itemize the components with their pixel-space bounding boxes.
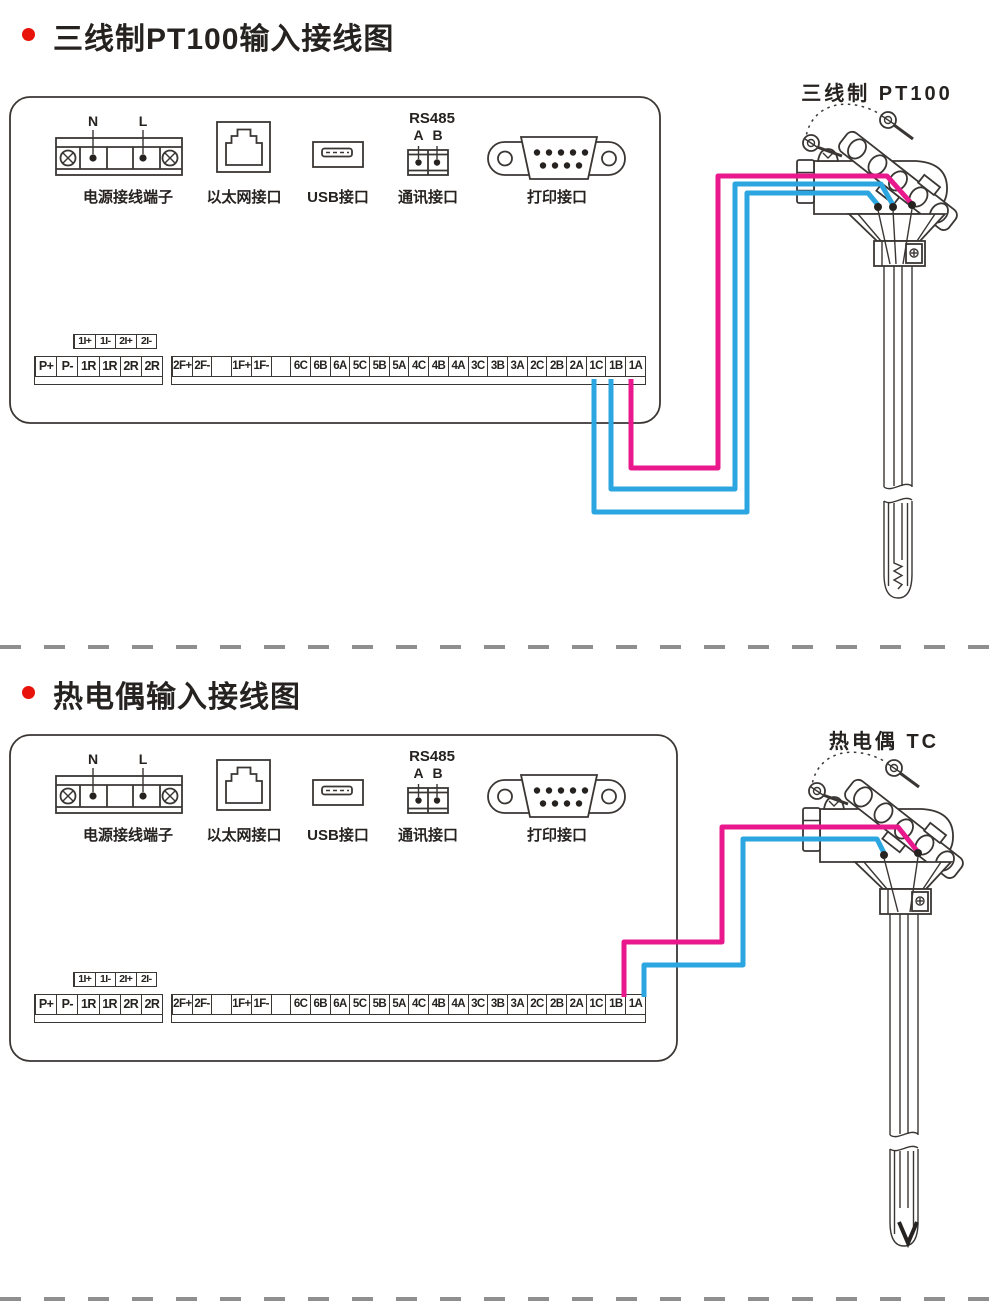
print-port-label: 打印接口	[487, 186, 627, 207]
rs485-label: RS485	[392, 748, 472, 765]
terminal-cell: P+	[35, 995, 56, 1014]
terminal-cell: 3C	[468, 357, 488, 376]
terminal-cell: 2A	[566, 357, 586, 376]
terminal-cell: 1R	[77, 357, 98, 376]
current-terminal-strip-2: 1I+1I-2I+2I-	[73, 972, 157, 987]
terminal-cell: 2I-	[136, 335, 157, 348]
terminal-cell: 2R	[141, 357, 162, 376]
terminal-cell: 5A	[389, 357, 409, 376]
terminal-cell: 3B	[487, 995, 507, 1014]
terminal-cell: 3C	[468, 995, 488, 1014]
terminal-cell: 2I+	[115, 973, 136, 986]
terminal-cell: 1B	[605, 995, 625, 1014]
terminal-cell: 2A	[566, 995, 586, 1014]
terminal-cell: 5A	[389, 995, 409, 1014]
terminal-cell: 2R	[141, 995, 162, 1014]
terminal-cell: 6C	[290, 995, 310, 1014]
terminal-cell: 2I+	[115, 335, 136, 348]
terminal-cell: 1I+	[74, 973, 95, 986]
terminal-cell: 1R	[77, 995, 98, 1014]
terminal-cell: 5B	[369, 357, 389, 376]
terminal-cell	[211, 357, 231, 376]
terminal-cell: 1F-	[251, 995, 271, 1014]
terminal-cell: 6A	[330, 357, 350, 376]
strip-rail	[35, 376, 162, 384]
terminal-cell: 5B	[369, 995, 389, 1014]
sensor-probe-pt100	[797, 104, 965, 598]
terminal-cell: P-	[56, 357, 77, 376]
rs485-b-label: B	[427, 765, 448, 781]
current-terminal-strip-1: 1I+1I-2I+2I-	[73, 334, 157, 349]
terminal-cell: P-	[56, 995, 77, 1014]
terminal-cell: 2B	[546, 357, 566, 376]
pt100-element	[894, 560, 902, 589]
strip-rail	[172, 376, 645, 384]
terminal-cell: 3B	[487, 357, 507, 376]
terminal-cell: 3A	[507, 995, 527, 1014]
terminal-cell: 6C	[290, 357, 310, 376]
terminal-cell: 4C	[408, 357, 428, 376]
terminal-cell: 2F-	[192, 357, 212, 376]
terminal-cell: 2B	[546, 995, 566, 1014]
terminal-cell: 6B	[310, 995, 330, 1014]
terminal-cell: 2R	[120, 995, 141, 1014]
comm-port-label: 通讯接口	[358, 186, 498, 207]
terminal-cell: 5C	[349, 357, 369, 376]
strip-rail	[35, 1014, 162, 1022]
terminal-cell: 1R	[99, 357, 120, 376]
section1-bullet-icon	[22, 28, 35, 41]
rs485-a-label: A	[408, 127, 429, 143]
terminal-cell: 1B	[605, 357, 625, 376]
input-channel-strip-2: 2F+2F-1F+1F-6C6B6A5C5B5A4C4B4A3C3B3A2C2B…	[171, 994, 646, 1023]
terminal-cell: 5C	[349, 995, 369, 1014]
terminal-cell: 3A	[507, 357, 527, 376]
power-l-label: L	[133, 113, 153, 129]
rs485-a-label: A	[408, 765, 429, 781]
comm-port-label: 通讯接口	[358, 824, 498, 845]
terminal-cell: 1R	[99, 995, 120, 1014]
power-l-label: L	[133, 751, 153, 767]
section2-bullet-icon	[22, 686, 35, 699]
terminal-cell: 4B	[428, 995, 448, 1014]
strip-rail	[172, 1014, 645, 1022]
terminal-cell: 2C	[527, 357, 547, 376]
terminal-cell: 1F+	[231, 995, 251, 1014]
sensor-probe-tc	[803, 752, 971, 1246]
terminal-cell: P+	[35, 357, 56, 376]
terminal-cell: 6A	[330, 995, 350, 1014]
page-bottom-divider	[0, 1297, 990, 1301]
terminal-cell: 1C	[586, 995, 606, 1014]
terminal-cell: 2R	[120, 357, 141, 376]
wiring-diagram-page: 三线制PT100输入接线图 N L RS485 A B 电源接线端子 以太网接口…	[0, 0, 990, 1311]
terminal-cell	[211, 995, 231, 1014]
terminal-cell: 1F+	[231, 357, 251, 376]
terminal-cell: 4A	[448, 995, 468, 1014]
terminal-cell: 4B	[428, 357, 448, 376]
power-relay-strip-2: P+P-1R1R2R2R	[34, 994, 163, 1023]
terminal-cell: 1I+	[74, 335, 95, 348]
section1-title: 三线制PT100输入接线图	[53, 14, 394, 58]
terminal-cell: 1F-	[251, 357, 271, 376]
terminal-cell: 6B	[310, 357, 330, 376]
power-n-label: N	[83, 113, 103, 129]
terminal-cell: 2C	[527, 995, 547, 1014]
input-channel-strip-1: 2F+2F-1F+1F-6C6B6A5C5B5A4C4B4A3C3B3A2C2B…	[171, 356, 646, 385]
terminal-cell: 2I-	[136, 973, 157, 986]
terminal-cell: 1C	[586, 357, 606, 376]
terminal-cell: 2F+	[172, 995, 192, 1014]
print-port-label: 打印接口	[487, 824, 627, 845]
terminal-cell: 1A	[625, 357, 645, 376]
terminal-cell: 1I-	[95, 335, 116, 348]
sensor1-label: 三线制 PT100	[777, 77, 977, 106]
terminal-cell: 4C	[408, 995, 428, 1014]
terminal-cell: 2F+	[172, 357, 192, 376]
rs485-b-label: B	[427, 127, 448, 143]
terminal-cell: 2F-	[192, 995, 212, 1014]
terminal-cell	[271, 995, 291, 1014]
power-relay-strip-1: P+P-1R1R2R2R	[34, 356, 163, 385]
section-divider	[0, 645, 990, 649]
section2-title: 热电偶输入接线图	[53, 672, 301, 716]
rs485-label: RS485	[392, 110, 472, 127]
terminal-cell: 4A	[448, 357, 468, 376]
sensor2-label: 热电偶 TC	[784, 725, 984, 754]
terminal-cell: 1I-	[95, 973, 116, 986]
terminal-cell	[271, 357, 291, 376]
power-n-label: N	[83, 751, 103, 767]
terminal-cell: 1A	[625, 995, 645, 1014]
